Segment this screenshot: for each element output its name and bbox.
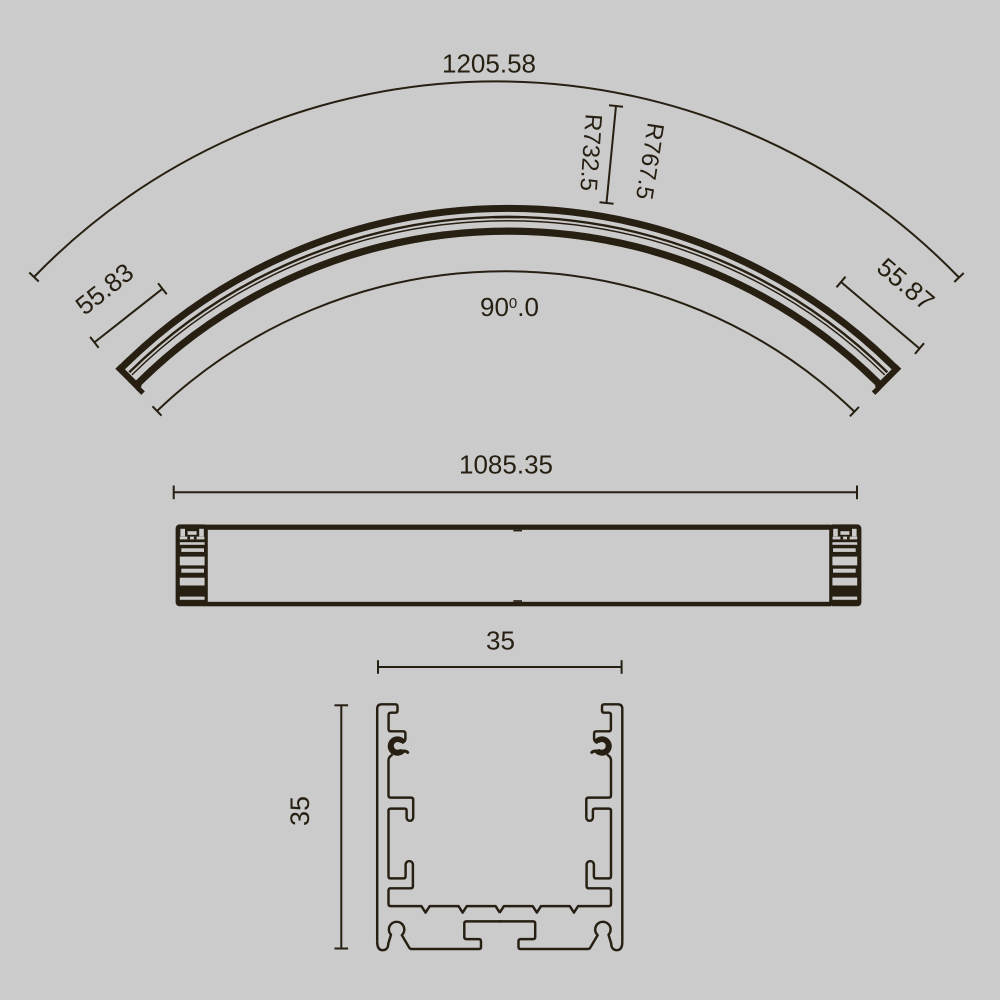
svg-text:35: 35 [285,796,315,826]
svg-text:R732.5: R732.5 [574,113,606,192]
svg-text:1085.35: 1085.35 [459,450,553,480]
svg-text:35: 35 [486,626,515,656]
svg-text:1205.58: 1205.58 [442,49,536,79]
